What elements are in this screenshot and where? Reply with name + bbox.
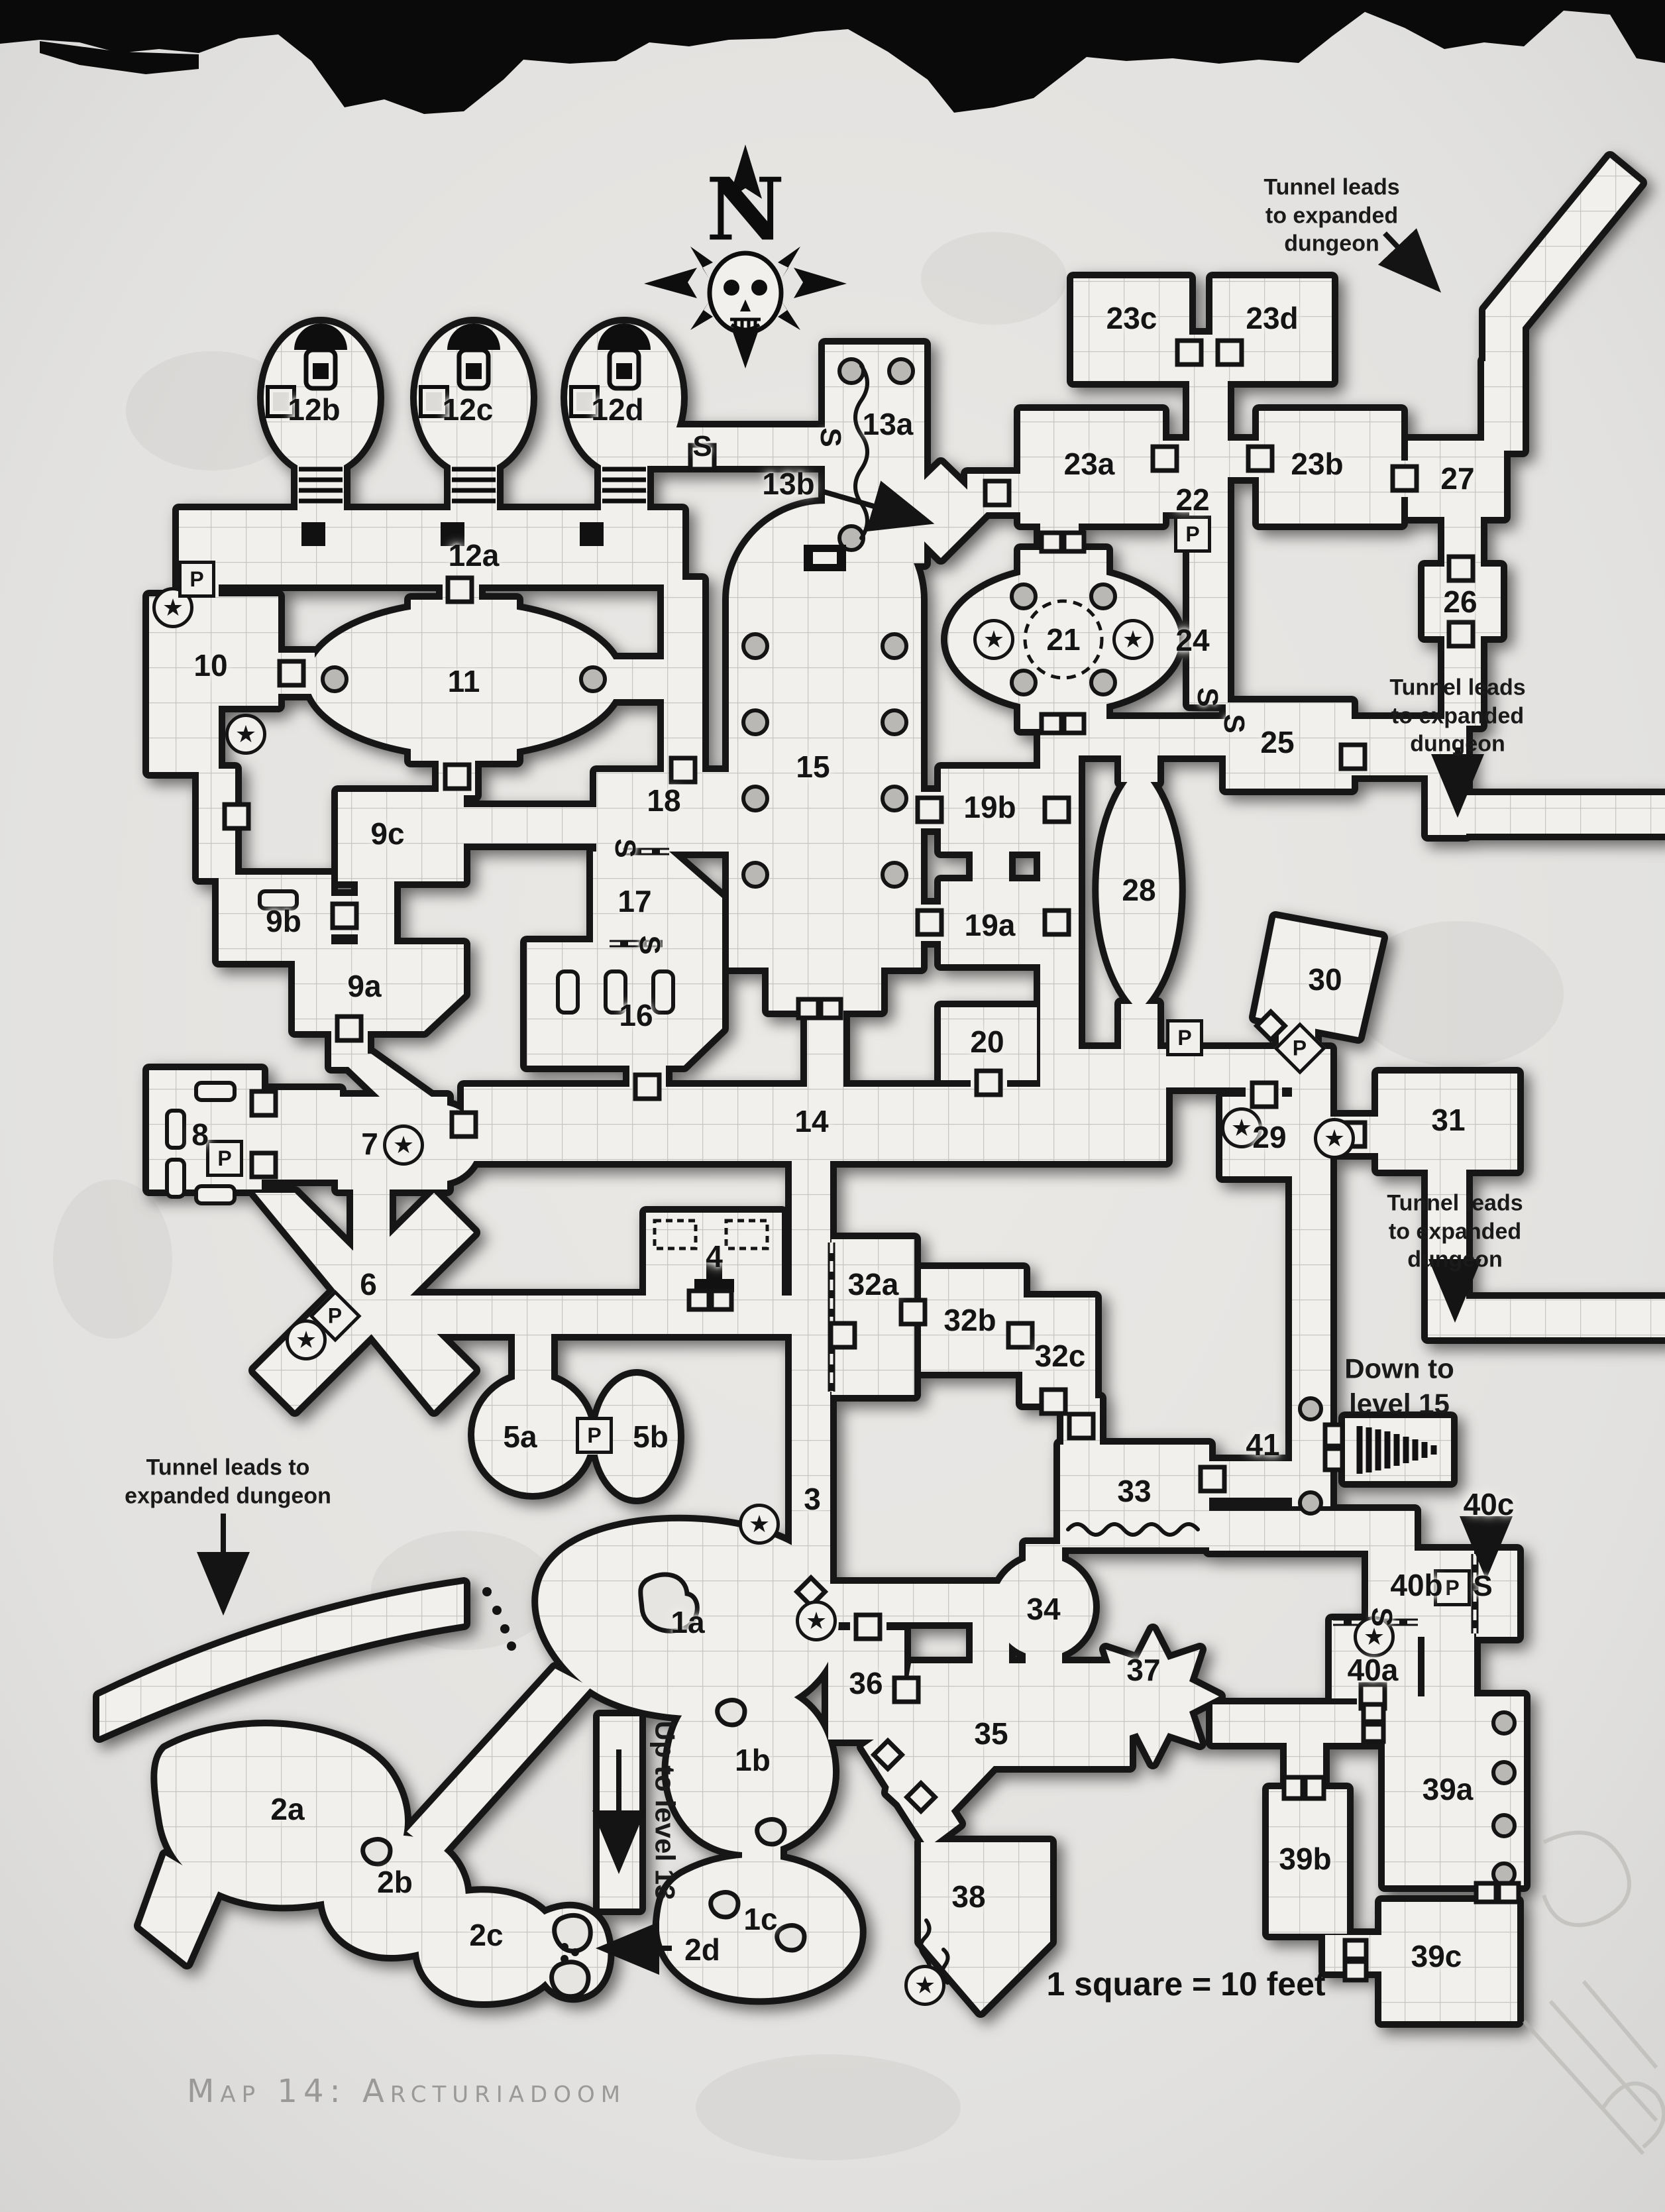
room-label-25: 25 <box>1260 724 1294 760</box>
room-label-29: 29 <box>1252 1119 1286 1155</box>
room-label-8: 8 <box>191 1117 209 1152</box>
room-label-18: 18 <box>647 783 680 818</box>
room-label-40a: 40a <box>1348 1652 1399 1688</box>
statue-star-marker: ★ <box>383 1125 424 1166</box>
room-label-9a: 9a <box>347 968 381 1004</box>
room-label-28: 28 <box>1122 872 1155 908</box>
dungeon-map-drawing <box>0 0 1665 2212</box>
statue-star-marker: ★ <box>904 1965 945 2006</box>
room-label-34: 34 <box>1026 1591 1060 1627</box>
pit-trap-letter: P <box>1445 1576 1459 1600</box>
pit-trap-marker: P <box>178 561 215 598</box>
room-label-19a: 19a <box>965 907 1016 943</box>
annotation-down-to-level-15: Down to level 15 <box>1344 1352 1454 1421</box>
room-label-27: 27 <box>1440 461 1474 496</box>
secret-door-marker: S <box>814 427 847 447</box>
statue-star-marker: ★ <box>225 714 266 755</box>
annotation-tunnel-right-mid: Tunnel leads to expanded dungeon <box>1389 673 1525 758</box>
map-title: Map 14: Arcturiadoom <box>187 2073 626 2110</box>
statue-star-marker: ★ <box>1314 1118 1355 1159</box>
pit-trap-letter: P <box>328 1304 342 1329</box>
room-label-40b: 40b <box>1390 1567 1442 1603</box>
room-label-10: 10 <box>193 647 227 683</box>
room-label-38: 38 <box>951 1879 985 1914</box>
room-label-23d: 23d <box>1246 300 1298 336</box>
statue-star-marker: ★ <box>973 619 1014 660</box>
secret-door-marker: S <box>1365 1607 1398 1626</box>
room-label-39a: 39a <box>1423 1771 1474 1807</box>
annotation-tunnel-top-right: Tunnel leads to expanded dungeon <box>1263 173 1399 258</box>
room-label-40c: 40c <box>1464 1486 1515 1522</box>
secret-door-marker: S <box>692 430 712 463</box>
pit-trap-letter: P <box>1293 1036 1307 1061</box>
room-label-1c: 1c <box>743 1901 777 1937</box>
room-label-19b: 19b <box>963 789 1016 825</box>
room-label-15: 15 <box>796 749 830 785</box>
room-label-11: 11 <box>448 663 480 699</box>
statue-star-marker: ★ <box>739 1504 780 1545</box>
altar <box>804 545 846 571</box>
room-label-20: 20 <box>970 1024 1004 1060</box>
map-scale-note: 1 square = 10 feet <box>1046 1965 1325 2003</box>
room-label-12a: 12a <box>449 537 500 573</box>
compass-north-label: N <box>706 159 785 260</box>
annotation-up-to-level-13: Up to level 13 <box>647 1721 682 1901</box>
secret-door-marker: S <box>608 838 641 857</box>
pit-trap-letter: P <box>587 1423 601 1448</box>
secret-door-marker: S <box>633 935 666 954</box>
room-label-13a: 13a <box>863 406 914 442</box>
room-label-32b: 32b <box>943 1302 996 1338</box>
pit-trap-letter: P <box>189 567 203 592</box>
room-label-3: 3 <box>804 1481 821 1517</box>
room-label-9c: 9c <box>370 816 404 852</box>
pit-trap-marker: P <box>1174 516 1211 553</box>
pit-trap-marker: P <box>206 1140 243 1177</box>
pit-trap-letter: P <box>1177 1026 1191 1050</box>
secret-door-marker: S <box>1191 687 1224 706</box>
dungeon-map-page: N 1a1b1c2a2b2c2d345a5b6789a9b9c101112a12… <box>0 0 1665 2212</box>
room-label-23b: 23b <box>1291 446 1343 482</box>
room-label-37: 37 <box>1126 1652 1160 1688</box>
room-label-2d: 2d <box>684 1932 720 1967</box>
room-label-35: 35 <box>974 1716 1008 1751</box>
room-label-14: 14 <box>794 1103 828 1139</box>
statue-star-marker: ★ <box>1112 619 1154 660</box>
room-label-16: 16 <box>619 997 653 1033</box>
room-label-32a: 32a <box>848 1266 899 1302</box>
room-label-21: 21 <box>1046 622 1080 657</box>
secret-door-marker: S <box>1217 714 1250 733</box>
room-label-32c: 32c <box>1035 1338 1086 1374</box>
room-label-12b: 12b <box>288 392 340 427</box>
room-label-12d: 12d <box>591 392 643 427</box>
room-label-1b: 1b <box>735 1742 771 1778</box>
room-label-6: 6 <box>360 1266 377 1302</box>
room-label-9b: 9b <box>266 903 301 939</box>
room-label-30: 30 <box>1308 962 1342 997</box>
room-label-36: 36 <box>849 1665 883 1701</box>
room-label-22: 22 <box>1175 482 1209 518</box>
room-label-23a: 23a <box>1064 446 1115 482</box>
room-label-13b: 13b <box>762 466 814 502</box>
room-label-39c: 39c <box>1411 1938 1462 1974</box>
room-label-12c: 12c <box>443 392 494 427</box>
statue-star-marker: ★ <box>796 1600 837 1641</box>
room-label-23c: 23c <box>1106 300 1157 336</box>
pit-trap-marker: P <box>576 1417 613 1454</box>
room-label-41: 41 <box>1246 1427 1279 1463</box>
pit-trap-letter: P <box>1185 522 1199 547</box>
room-label-39b: 39b <box>1279 1841 1331 1877</box>
secret-door-marker: S <box>1473 1570 1492 1603</box>
annotation-tunnel-right-low: Tunnel leads to expanded dungeon <box>1387 1189 1523 1274</box>
room-label-5b: 5b <box>633 1419 669 1455</box>
annotation-tunnel-left: Tunnel leads to expanded dungeon <box>125 1454 331 1510</box>
room-label-31: 31 <box>1431 1102 1465 1138</box>
sarcophagi <box>558 971 673 1013</box>
pit-trap-letter: P <box>217 1146 231 1171</box>
room-label-2a: 2a <box>270 1791 304 1827</box>
room-label-4: 4 <box>706 1239 723 1274</box>
room-label-24: 24 <box>1175 622 1209 658</box>
room-label-17: 17 <box>618 883 651 919</box>
pit-trap-marker: P <box>1166 1019 1203 1056</box>
room-label-5a: 5a <box>503 1419 537 1455</box>
room-label-2b: 2b <box>377 1864 413 1900</box>
room-label-33: 33 <box>1117 1473 1151 1509</box>
room-label-2c: 2c <box>469 1917 503 1953</box>
room-label-1a: 1a <box>671 1604 704 1640</box>
room-label-7: 7 <box>361 1126 378 1162</box>
room-label-26: 26 <box>1443 584 1477 620</box>
